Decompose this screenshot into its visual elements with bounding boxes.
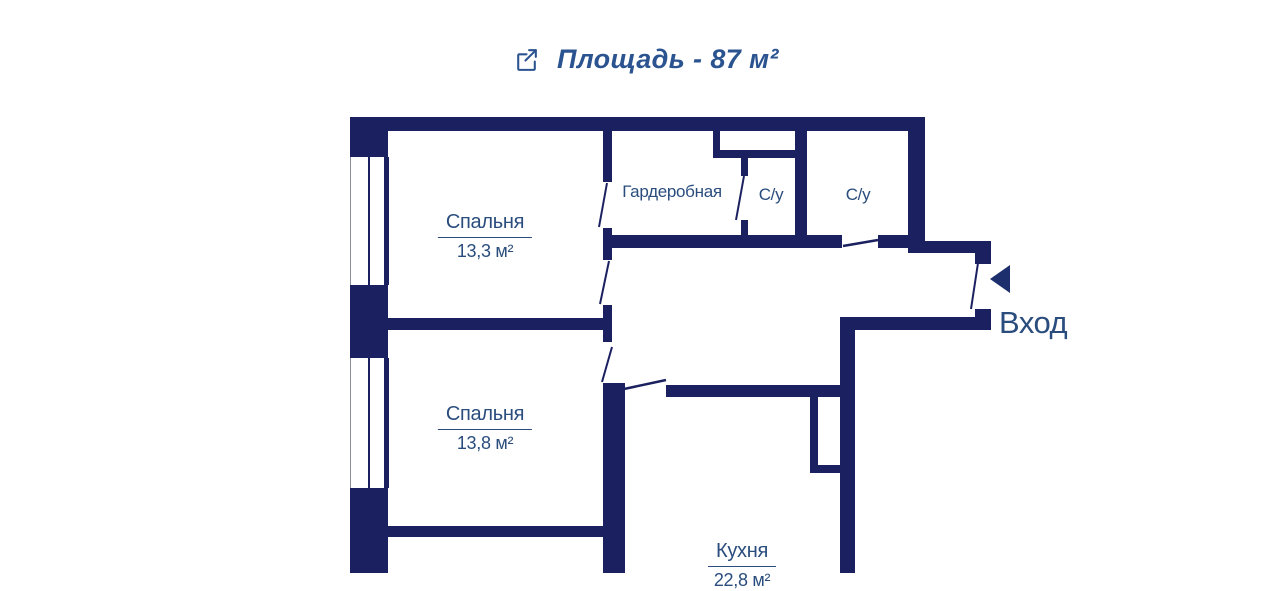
label-bedroom2: Спальня 13,8 м² (438, 403, 532, 454)
door-leaf-bedroom1-hall (600, 261, 609, 304)
door-leaf-entrance (971, 263, 978, 309)
bedroom2-name: Спальня (438, 403, 532, 430)
kitchen-name: Кухня (708, 540, 776, 567)
door-leaves (0, 0, 1280, 573)
bedroom1-name: Спальня (438, 211, 532, 238)
bedroom2-area: 13,8 м² (438, 433, 532, 454)
label-bathroom2: С/у (846, 185, 871, 205)
entrance-arrow-icon (990, 265, 1010, 293)
door-leaf-bathroom1 (736, 176, 744, 220)
label-bedroom1: Спальня 13,3 м² (438, 211, 532, 262)
wardrobe-name: Гардеробная (622, 182, 722, 202)
door-leaf-bedroom1-wardrobe (599, 183, 607, 227)
label-bathroom1: С/у (759, 185, 784, 205)
door-leaf-bedroom2 (602, 347, 612, 382)
bedroom1-area: 13,3 м² (438, 241, 532, 262)
label-kitchen: Кухня 22,8 м² (708, 540, 776, 591)
bathroom2-name: С/у (846, 185, 871, 205)
label-wardrobe: Гардеробная (622, 182, 722, 202)
door-leaf-bathroom2 (843, 240, 878, 246)
floor-plan: Площадь - 87 м² (0, 0, 1280, 573)
door-leaf-kitchen (624, 380, 666, 389)
entrance-label: Вход (999, 305, 1067, 341)
bathroom1-name: С/у (759, 185, 784, 205)
kitchen-area: 22,8 м² (708, 570, 776, 591)
